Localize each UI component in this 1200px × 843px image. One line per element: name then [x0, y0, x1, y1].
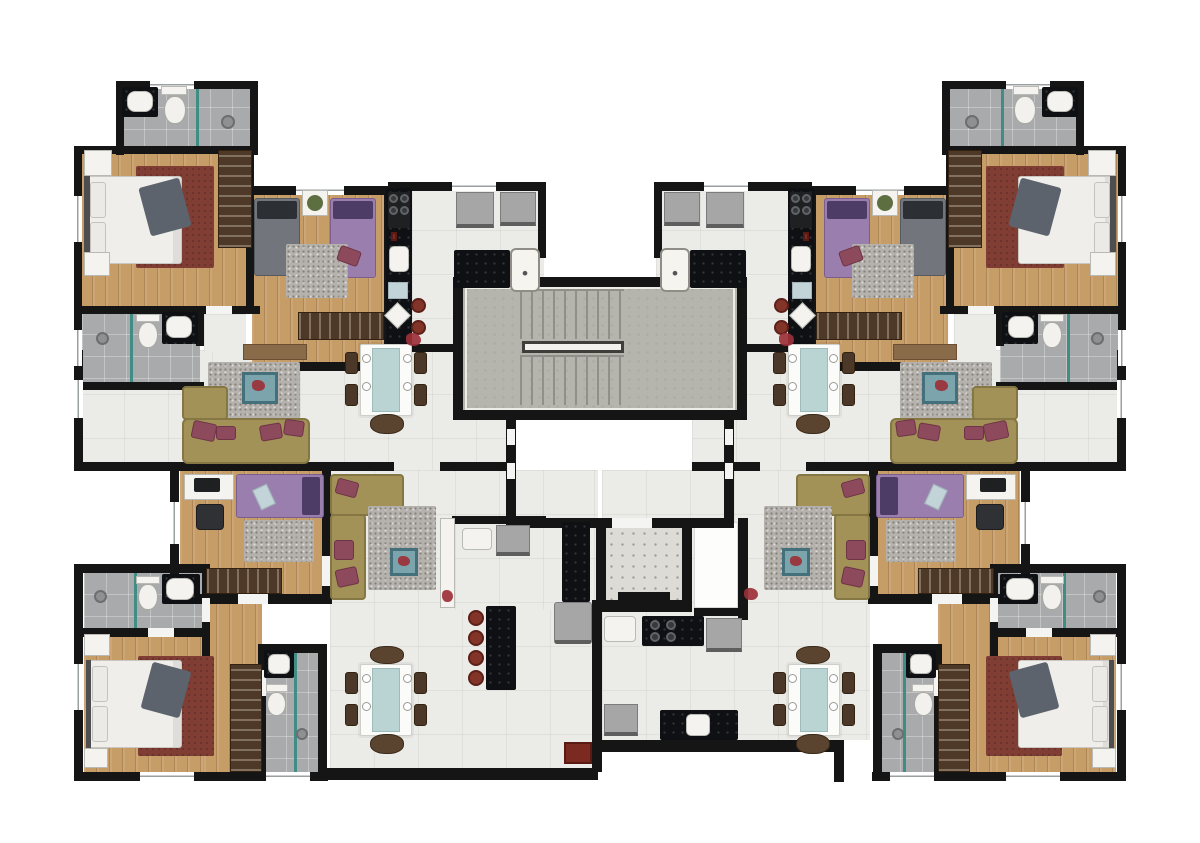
- burner-1-right: [802, 194, 811, 203]
- dining2-chair-r1-right: [773, 672, 786, 694]
- kitchen-br-burner-1: [650, 620, 660, 630]
- bed4-headboard-right: [1109, 660, 1114, 748]
- dining-chair-r1: [414, 352, 427, 374]
- island-stool-4: [468, 670, 484, 686]
- bath4-toilet-bowl-right: [914, 692, 933, 716]
- stair-landing-rail: [522, 341, 624, 353]
- dining-plate-2-right: [829, 382, 838, 391]
- kitchen-strip-bottle-right: [803, 232, 809, 241]
- nook-stool-1-right: [774, 298, 789, 313]
- bath2-shower-head-right: [1091, 332, 1104, 345]
- bath4-shower-head-right: [892, 728, 904, 740]
- dining2-chair-north-right: [796, 646, 830, 664]
- living2-flowers-right: [790, 556, 802, 566]
- kitchen-br-appliance: [604, 704, 638, 736]
- bath3-toilet-bowl: [138, 584, 158, 610]
- bath2-accent-stripe: [130, 314, 133, 384]
- bath1-toilet-bowl-right: [1014, 96, 1036, 124]
- dining2-chair-south-right: [796, 734, 830, 754]
- bath2-shower-head: [96, 332, 109, 345]
- burner-2-right: [791, 194, 800, 203]
- bath3-shower-head-right: [1093, 590, 1106, 603]
- bath2-sink: [166, 316, 192, 338]
- bath2-toilet-bowl: [138, 322, 158, 348]
- bath4-toilet-bowl: [267, 692, 286, 716]
- bed1-nightstand-b: [84, 252, 110, 276]
- dining-plate-2: [362, 382, 371, 391]
- door-gap-bath3: [148, 628, 174, 637]
- kitchen-strip-board: [388, 282, 408, 299]
- bath1-accent-stripe: [196, 85, 199, 149]
- sofa-pillow-4-right: [895, 419, 917, 438]
- kitchen-br-counter-sink: [686, 714, 710, 736]
- lobby-flowers: [744, 588, 758, 600]
- sofa-pillow-4: [283, 419, 305, 438]
- burner-3: [389, 206, 398, 215]
- island-stool-2: [468, 630, 484, 646]
- elevator-lobby-floor: [694, 522, 738, 608]
- floor-plan-canvas: [0, 0, 1200, 843]
- window-bath4-bottom-right: [890, 772, 934, 781]
- bed2-pillow-purple-right: [827, 201, 867, 219]
- stair-treads-lower: [520, 355, 624, 405]
- dining2-plate-4-right: [788, 702, 797, 711]
- elevator-cab-floor: [606, 528, 682, 600]
- washer: [456, 192, 494, 228]
- kitchen-strip-board-right: [792, 282, 812, 299]
- bed4-wardrobe-right: [938, 664, 970, 772]
- wall-bottomleft-zone-bottom: [326, 768, 598, 780]
- sofa-pillow-2-right: [964, 426, 984, 440]
- dining-chair-r1-right: [773, 352, 786, 374]
- bed1-headboard-right: [1110, 176, 1116, 264]
- wall-kitchen-bl-top: [452, 516, 546, 524]
- bath1-toilet-tank: [161, 86, 187, 95]
- wall-lobby-bottom: [694, 608, 748, 616]
- dining-chair-l1-right: [842, 352, 855, 374]
- window-bath4-bottom: [266, 772, 310, 781]
- dining2-plate-2: [362, 702, 371, 711]
- burner-2: [400, 194, 409, 203]
- hall-floor-bedroom-link: [204, 314, 246, 352]
- bath3-sink: [166, 578, 194, 600]
- door-gap-hall-upper-r: [725, 429, 733, 445]
- door-gap-hall: [202, 598, 210, 622]
- window-bed4-bottom: [140, 772, 194, 781]
- kitchen-br-burner-3: [650, 632, 660, 642]
- dining2-chair-l2: [345, 704, 358, 726]
- kitchen-strip-sink: [389, 246, 409, 272]
- dining-chair-end: [370, 414, 404, 434]
- window-corridor: [452, 182, 496, 191]
- door-gap-bed3-bottom: [238, 594, 268, 604]
- bed3-laptop: [194, 478, 220, 492]
- window-bed4-bottom-right: [1006, 772, 1060, 781]
- living-coffee-flowers-right: [935, 380, 948, 391]
- bed4-nightstand-a-right: [1090, 634, 1116, 656]
- bath1-sink: [127, 91, 153, 112]
- window-living-right: [1117, 380, 1126, 418]
- dining2-chair-r2-right: [773, 704, 786, 726]
- entry-door-right: [660, 248, 690, 292]
- door-gap-bed3-bottom-right: [932, 594, 962, 604]
- wall-living-divider-c: [440, 462, 508, 471]
- living2-flowers: [398, 556, 410, 566]
- nook-stool-1: [411, 298, 426, 313]
- bath1-shower-head: [221, 115, 235, 129]
- door-gap-bed3-right: [869, 556, 878, 586]
- wall-bottomright-step: [834, 740, 844, 782]
- bath2-sink-right: [1008, 316, 1034, 338]
- kitchen-br-sink: [604, 616, 636, 642]
- dining2-plate-3: [403, 674, 412, 683]
- wall-bath1-right-right: [942, 85, 950, 155]
- dining2-chair-north: [370, 646, 404, 664]
- window-bed3-right: [1021, 502, 1030, 544]
- window-bed3: [170, 502, 179, 544]
- bed3-wardrobe-right: [918, 568, 994, 594]
- wall-bath1-right: [250, 85, 258, 155]
- dining-runner-top: [372, 348, 400, 412]
- bed3-desk-chair: [196, 504, 224, 530]
- dining-plate-1-right: [829, 354, 838, 363]
- bed1-nightstand-a-right: [1088, 150, 1116, 176]
- kitchen-bl-flowers: [442, 590, 453, 602]
- dining-chair-l1: [345, 352, 358, 374]
- bed2-plant-right: [877, 195, 893, 211]
- bath1-shower-head-right: [965, 115, 979, 129]
- wall-living-divider-a: [74, 462, 178, 471]
- window-bed4-right: [1117, 664, 1126, 710]
- bed3-rug: [244, 520, 314, 562]
- bed2-pillow-gray-right: [903, 201, 943, 219]
- sofa2-pillow-2: [334, 540, 354, 560]
- bed3-laptop-right: [980, 478, 1006, 492]
- bath3-toilet-bowl-right: [1042, 584, 1062, 610]
- water-heater-right: [664, 192, 700, 226]
- window-bath2: [74, 330, 82, 366]
- bed2-pillow-purple: [333, 201, 373, 219]
- bed4-nightstand-b: [84, 748, 108, 768]
- bath1-accent-stripe-right: [1001, 85, 1004, 149]
- door-gap-lobby: [612, 518, 652, 528]
- bath4-sink: [268, 654, 290, 674]
- kitchen-bl-oven: [496, 525, 530, 556]
- living-sideboard-right: [893, 344, 957, 360]
- dining2-runner-right: [800, 668, 828, 732]
- bed4-pillow-a-right: [1092, 666, 1108, 702]
- wall-living-divider-b-right: [806, 462, 870, 471]
- living-sideboard: [243, 344, 307, 360]
- door-gap-hall-right: [990, 598, 998, 622]
- door-gap-hall-upper: [507, 429, 515, 445]
- bed4-pillow-b-right: [1092, 706, 1108, 742]
- bed4-pillow-b: [92, 706, 108, 742]
- door-gap-hall-lower: [507, 463, 515, 479]
- window-living: [74, 380, 83, 418]
- bed1-wardrobe-right: [948, 150, 982, 248]
- bed2-pillow-gray: [257, 201, 297, 219]
- dining-plate-4-right: [788, 382, 797, 391]
- entry-counter: [454, 250, 510, 288]
- bed3-pillow: [302, 477, 320, 515]
- bed4-nightstand-b-right: [1092, 748, 1116, 768]
- wall-stair-left: [453, 277, 463, 420]
- door-gap-bed1-right: [968, 306, 994, 314]
- bath4-shower-head: [296, 728, 308, 740]
- bath1-toilet-bowl: [164, 96, 186, 124]
- dining-runner-top-right: [800, 348, 828, 412]
- bed1-pillow-a-right: [1094, 182, 1110, 218]
- dining-chair-end-right: [796, 414, 830, 434]
- wall-living-divider-b: [330, 462, 394, 471]
- dining2-chair-south: [370, 734, 404, 754]
- door-gap-bath3-right: [1026, 628, 1052, 637]
- wall-stairhall-west: [538, 182, 546, 258]
- dining2-plate-1: [362, 674, 371, 683]
- bed3-pillow-right: [880, 477, 898, 515]
- dining-flowers-right: [779, 333, 794, 346]
- burner-4: [400, 206, 409, 215]
- entry-counter-right: [690, 250, 746, 288]
- sofa2-pillow-2-right: [846, 540, 866, 560]
- window-bed4: [74, 664, 83, 710]
- kitchen-bl-fridge: [554, 602, 592, 644]
- sofa-chaise-top: [182, 386, 228, 420]
- kitchen-bl-stove: [564, 742, 592, 764]
- washer-right: [706, 192, 744, 228]
- dining2-chair-l2-right: [842, 704, 855, 726]
- wall-bath4-right-right: [873, 644, 882, 774]
- bed3-desk-chair-right: [976, 504, 1004, 530]
- bath2-accent-stripe-right: [1067, 314, 1070, 384]
- dining-chair-r2: [414, 384, 427, 406]
- island-stool-1: [468, 610, 484, 626]
- dining2-plate-2-right: [829, 702, 838, 711]
- dining2-plate-1-right: [829, 674, 838, 683]
- wall-stair-right: [737, 277, 747, 420]
- bed1-wardrobe: [218, 150, 252, 248]
- stair-treads-upper: [520, 289, 624, 339]
- kitchen-strip-bottle: [391, 232, 397, 241]
- bath4-toilet-tank: [266, 684, 288, 692]
- dining2-plate-4: [403, 702, 412, 711]
- window-bed1-right: [1118, 196, 1126, 242]
- bed4-pillow-a: [92, 666, 108, 702]
- kitchen-bl-counter-right: [562, 522, 590, 602]
- wall-lobby-right: [738, 518, 748, 620]
- dining-plate-3-right: [788, 354, 797, 363]
- bath3-shower-head: [94, 590, 107, 603]
- window-corridor-right: [704, 182, 748, 191]
- kitchen-br-fridge: [706, 618, 742, 652]
- kitchen-strip-sink-right: [791, 246, 811, 272]
- kitchen-bl-island: [486, 606, 516, 690]
- dining2-chair-r1: [414, 672, 427, 694]
- bed1-nightstand-a: [84, 150, 112, 176]
- bath3-toilet-tank: [136, 576, 160, 584]
- bath2-toilet-tank-right: [1040, 314, 1064, 322]
- bath4-accent-stripe: [294, 650, 297, 774]
- bath4-sink-right: [910, 654, 932, 674]
- living-coffee-flowers: [252, 380, 265, 391]
- bath1-toilet-tank-right: [1013, 86, 1039, 95]
- dining-chair-l2-right: [842, 384, 855, 406]
- bed4-wardrobe: [230, 664, 262, 772]
- bed3-rug-right: [886, 520, 956, 562]
- bath4-toilet-tank-right: [912, 684, 934, 692]
- kitchen-bl-sink: [462, 528, 492, 550]
- door-gap-hall-lower-r: [725, 463, 733, 479]
- bed2-plant: [307, 195, 323, 211]
- kitchen-br-burner-4: [666, 632, 676, 642]
- dining-chair-l2: [345, 384, 358, 406]
- dining-plate-4: [403, 382, 412, 391]
- bed4-headboard: [86, 660, 91, 748]
- bed2-wardrobe-right: [816, 312, 902, 340]
- elevator-sill: [618, 592, 670, 600]
- dining-plate-1: [362, 354, 371, 363]
- kitchen-br-burner-2: [666, 620, 676, 630]
- wall-stair-bottom: [453, 410, 747, 420]
- dining-plate-3: [403, 354, 412, 363]
- wall-living-divider-a-right: [1022, 462, 1126, 471]
- window-bath2-right: [1118, 330, 1126, 366]
- dining2-chair-l1: [345, 672, 358, 694]
- bath2-toilet-tank: [136, 314, 160, 322]
- sofa-pillow-2: [216, 426, 236, 440]
- entry-door: [510, 248, 540, 292]
- burner-4-right: [791, 206, 800, 215]
- bath3-toilet-tank-right: [1040, 576, 1064, 584]
- bed1-nightstand-b-right: [1090, 252, 1116, 276]
- bed2-wardrobe: [298, 312, 384, 340]
- bed4-nightstand-a: [84, 634, 110, 656]
- water-heater: [500, 192, 536, 226]
- island-stool-3: [468, 650, 484, 666]
- bath2-toilet-bowl-right: [1042, 322, 1062, 348]
- burner-1: [389, 194, 398, 203]
- bed3-wardrobe: [206, 568, 282, 594]
- bath1-sink-right: [1047, 91, 1073, 112]
- wall-bath3-top: [74, 564, 210, 573]
- bed1-pillow-a: [90, 182, 106, 218]
- door-gap-bed1: [206, 306, 232, 314]
- dining2-chair-r2: [414, 704, 427, 726]
- dining2-runner: [372, 668, 400, 732]
- wall-bath3-top-right: [990, 564, 1126, 573]
- dining-flowers: [406, 333, 421, 346]
- sofa-chaise-top-right: [972, 386, 1018, 420]
- window-bed1: [74, 196, 82, 242]
- dining2-plate-3-right: [788, 674, 797, 683]
- dining2-chair-l1-right: [842, 672, 855, 694]
- burner-3-right: [802, 206, 811, 215]
- hall-floor-bedroom-link-right: [954, 314, 996, 352]
- wall-bath4-right: [318, 644, 327, 774]
- wall-stairhall-west-right: [654, 182, 662, 258]
- bath3-sink-right: [1006, 578, 1034, 600]
- dining-chair-r2-right: [773, 384, 786, 406]
